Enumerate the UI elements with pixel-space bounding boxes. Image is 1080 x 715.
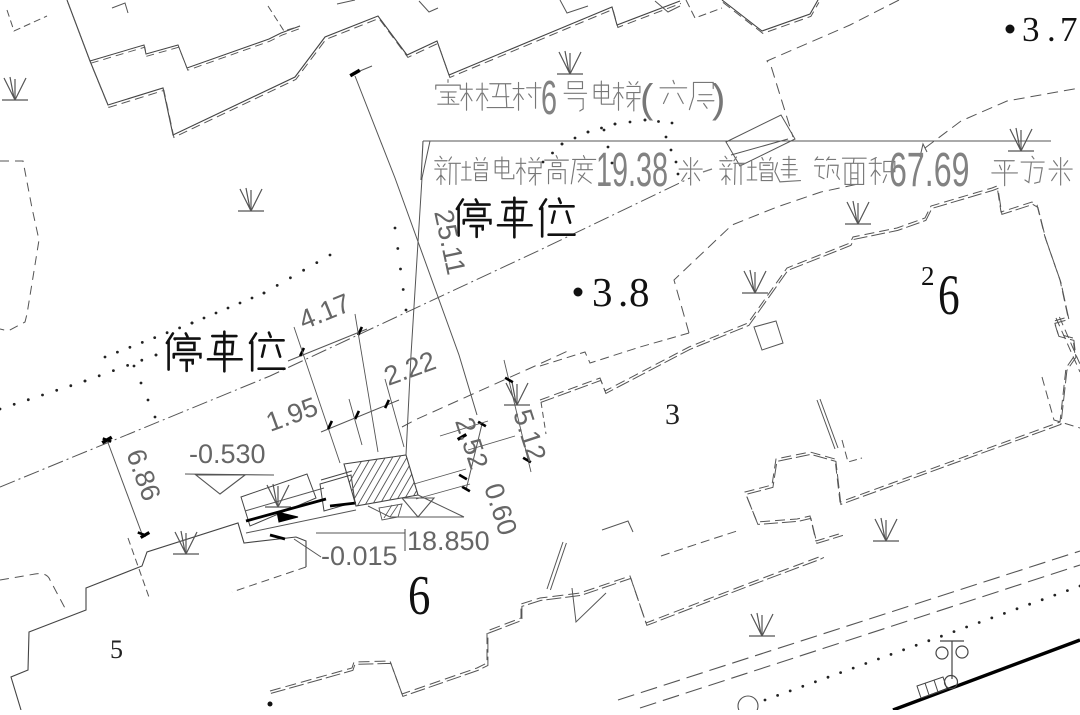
svg-text:-0.530: -0.530 (189, 439, 266, 469)
svg-text:2: 2 (921, 261, 935, 291)
svg-text:): ) (712, 77, 725, 121)
svg-text:.: . (618, 269, 628, 315)
svg-text:19.38: 19.38 (596, 144, 668, 197)
svg-text:3: 3 (592, 269, 613, 315)
svg-text:6: 6 (541, 72, 557, 125)
svg-text:18.850: 18.850 (407, 526, 490, 556)
svg-text:6: 6 (408, 564, 430, 626)
svg-text:3: 3 (1022, 10, 1040, 49)
svg-text:6: 6 (938, 263, 960, 326)
svg-text:(: ( (640, 77, 654, 121)
svg-text:8: 8 (629, 269, 650, 315)
svg-text:67.69: 67.69 (889, 143, 969, 197)
svg-text:3: 3 (665, 398, 680, 431)
svg-text:5: 5 (110, 635, 123, 664)
svg-text:-0.015: -0.015 (321, 541, 398, 571)
svg-text:.: . (1047, 10, 1056, 49)
svg-text:7: 7 (1060, 10, 1078, 49)
